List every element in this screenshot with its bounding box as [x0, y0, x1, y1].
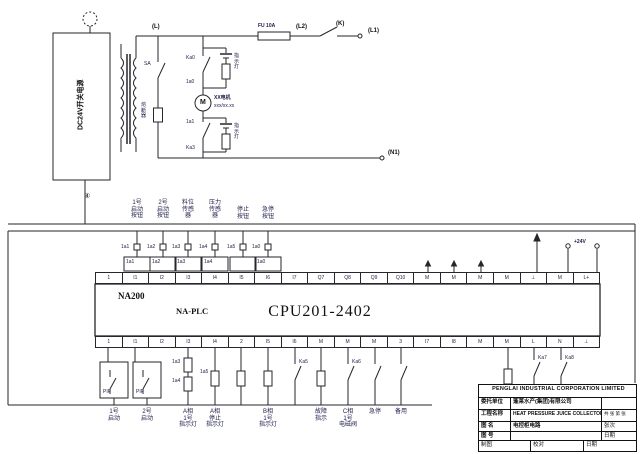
plc-brand: NA200: [118, 291, 145, 301]
input-contact-tag-5: 1a5: [227, 245, 235, 250]
plc-cpu-model: CPU201-2402: [240, 303, 400, 321]
terminal-cell: N: [547, 337, 574, 347]
relay1-label: PIF: [103, 390, 111, 395]
project-label: 工程名称: [479, 410, 511, 421]
terminal-cell: I6: [282, 337, 309, 347]
terminal-cell: Q9: [361, 273, 388, 283]
node-4-label: ④: [84, 193, 90, 201]
sa-contact-tag: SA: [144, 62, 151, 68]
fuse-label: FU 10A: [258, 24, 275, 30]
node-l1-label: (L1): [368, 28, 379, 35]
terminal-cell: ⊥: [521, 273, 548, 283]
terminal-cell: I5: [229, 273, 256, 283]
project-value: HEAT PRESSURE JUICE COLLECTOR: [511, 410, 602, 421]
node-l-label: (L): [152, 24, 160, 31]
output-contact-tag-3: Ka7: [538, 356, 547, 361]
terminal-tag-1: 1a1: [126, 260, 134, 265]
output-label-7: C相 1号 电磁阀: [333, 409, 363, 429]
terminal-cell: M: [467, 273, 494, 283]
title-block-client-row: 委托单位 蓬莱水产(集团)有限公司: [479, 398, 636, 410]
terminal-cell: I2: [149, 273, 176, 283]
input-label-2: 2号 启动 按钮: [152, 200, 174, 220]
sign-left: 制图: [479, 441, 531, 451]
lamp1-contact-tag-top: Ka0: [186, 56, 195, 62]
client-value: 蓬莱水产(集团)有限公司: [511, 398, 602, 409]
terminal-cell: I8: [441, 337, 468, 347]
drawing-label: 图 名: [479, 422, 511, 431]
terminal-cell: 2: [229, 337, 256, 347]
output-contact-tag-2: Ka6: [352, 360, 361, 365]
lamp2-contact-tag-bottom: Ka3: [186, 146, 195, 152]
terminal-cell: I1: [123, 337, 150, 347]
terminal-cell: I2: [149, 337, 176, 347]
terminal-tag-5: 1a0: [257, 260, 265, 265]
terminal-cell: M: [361, 337, 388, 347]
plc-top-terminal-row: 1I1I2I3I4I5I6I7Q7Q8Q9Q10MMMM⊥ML+: [95, 272, 600, 284]
terminal-cell: Q8: [335, 273, 362, 283]
drawing-value: 电控柜电路: [511, 422, 602, 431]
terminal-tag-3: 1a3: [177, 260, 185, 265]
output-contact-tag-1: Ka5: [299, 360, 308, 365]
coil-tag-3: 1a5: [200, 370, 208, 375]
sa-device-label: 熔 断 器: [141, 103, 146, 120]
relay2-label: PIF: [136, 390, 144, 395]
terminal-cell: M: [308, 337, 335, 347]
output-label-5: B相 1号 指示灯: [253, 409, 283, 429]
output-contact-tag-4: Ka8: [565, 356, 574, 361]
node-l2-label: (L2): [296, 24, 307, 31]
output-label-6: 故障 指示: [306, 409, 336, 422]
client-extra: [602, 398, 636, 409]
input-label-1: 1号 启动 按钮: [126, 200, 148, 220]
output-label-9: 备用: [386, 409, 416, 416]
terminal-cell: Q7: [308, 273, 335, 283]
client-label: 委托单位: [479, 398, 511, 409]
lamp1-name: 指 示 灯: [234, 54, 239, 71]
number-label: 图 号: [479, 432, 511, 440]
motor-rating: xxx/xx.xx: [214, 104, 234, 110]
project-extra: 共 张 第 张: [602, 410, 636, 421]
node-n1-label: (N1): [388, 150, 400, 157]
coil-tag-2: 1a4: [172, 379, 180, 384]
terminal-cell: 3: [388, 337, 415, 347]
company-name: PENGLAI INDUSTRIAL CORPORATION LIMITED: [479, 385, 636, 397]
terminal-cell: M: [494, 273, 521, 283]
terminal-cell: I4: [202, 273, 229, 283]
number-value: [511, 432, 602, 440]
terminal-tag-4: 1a4: [204, 260, 212, 265]
title-block-drawing-row: 图 名 电控柜电路 张次: [479, 422, 636, 432]
terminal-cell: M: [414, 273, 441, 283]
terminal-cell: M: [467, 337, 494, 347]
number-extra: 日期: [602, 432, 636, 440]
input-contact-tag-2: 1a2: [147, 245, 155, 250]
sign-right: 日期: [584, 441, 636, 451]
input-label-6: 急停 按钮: [257, 207, 279, 220]
terminal-cell: 1: [96, 273, 123, 283]
input-contact-tag-3: 1a3: [172, 245, 180, 250]
terminal-cell: I6: [255, 273, 282, 283]
terminal-cell: L+: [574, 273, 600, 283]
terminal-cell: I3: [176, 337, 203, 347]
terminal-tag-2: 1a2: [152, 260, 160, 265]
title-block-company-row: PENGLAI INDUSTRIAL CORPORATION LIMITED: [479, 385, 636, 398]
input-contact-tag-4: 1a4: [199, 245, 207, 250]
terminal-cell: L: [521, 337, 548, 347]
schematic-page: DC24V开关电源 (L) FU 10A (L2) (K) (L1) (N1) …: [0, 0, 640, 454]
output-label-4: A相 停止 指示灯: [200, 409, 230, 429]
plus24v-label: +24V: [574, 240, 586, 246]
terminal-cell: I4: [202, 337, 229, 347]
lamp2-contact-tag-top: 1a1: [186, 120, 194, 126]
node-k-label: (K): [336, 21, 344, 28]
title-block-project-row: 工程名称 HEAT PRESSURE JUICE COLLECTOR 共 张 第…: [479, 410, 636, 422]
lamp1-contact-tag-bottom: 1a0: [186, 80, 194, 86]
coil-tag-1: 1a3: [172, 360, 180, 365]
terminal-cell: I5: [255, 337, 282, 347]
motor-name: XX电机: [214, 96, 231, 102]
output-label-1: 1号 启动: [99, 409, 129, 422]
motor-symbol: M: [200, 99, 206, 107]
terminal-cell: I7: [414, 337, 441, 347]
output-label-2: 2号 启动: [132, 409, 162, 422]
terminal-cell: M: [494, 337, 521, 347]
terminal-cell: I7: [282, 273, 309, 283]
psu-label: DC24V开关电源: [77, 70, 85, 140]
drawing-extra: 张次: [602, 422, 636, 431]
title-block: PENGLAI INDUSTRIAL CORPORATION LIMITED 委…: [478, 384, 637, 452]
title-block-number-row: 图 号 日期: [479, 432, 636, 441]
terminal-cell: M: [441, 273, 468, 283]
lamp2-name: 指 示 灯: [234, 124, 239, 141]
output-label-3: A相 1号 指示灯: [173, 409, 203, 429]
input-contact-tag-1: 1a1: [121, 245, 129, 250]
terminal-cell: ⊥: [574, 337, 600, 347]
terminal-cell: I3: [176, 273, 203, 283]
terminal-cell: M: [335, 337, 362, 347]
terminal-cell: Q10: [388, 273, 415, 283]
input-label-3: 料位 传感 器: [177, 200, 199, 220]
input-label-5: 停止 按钮: [232, 207, 254, 220]
terminal-cell: 1: [96, 337, 123, 347]
plc-family: NA-PLC: [176, 306, 208, 316]
input-contact-tag-6: 1a0: [252, 245, 260, 250]
input-label-4: 压力 传感 器: [204, 200, 226, 220]
title-block-sign-row: 制图 校对 日期: [479, 441, 636, 451]
terminal-cell: M: [547, 273, 574, 283]
plc-bottom-terminal-row: 1I1I2I3I42I5I6MMM3I7I8MMLN⊥: [95, 336, 600, 348]
terminal-cell: I1: [123, 273, 150, 283]
sign-mid: 校对: [531, 441, 584, 451]
